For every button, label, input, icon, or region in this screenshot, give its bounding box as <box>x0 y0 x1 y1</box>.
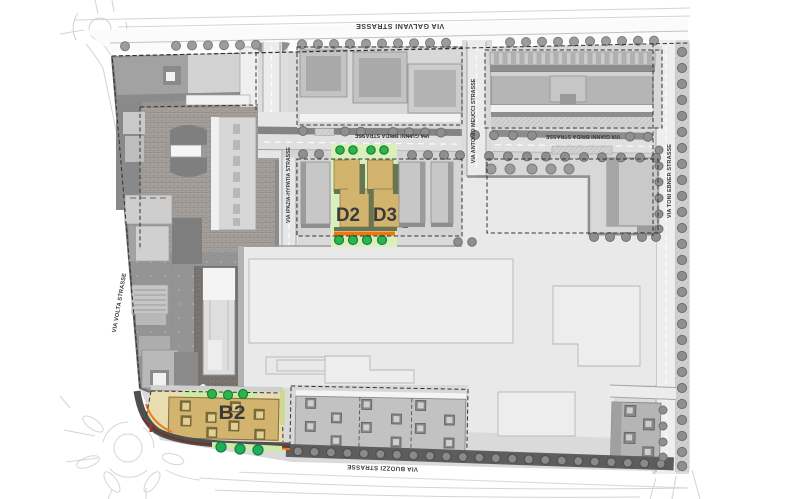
svg-text:VIA GIANNI BRIDA STRASSE: VIA GIANNI BRIDA STRASSE <box>354 132 429 138</box>
svg-text:D2: D2 <box>336 205 360 226</box>
svg-text:VIA GALVANI STRASSE: VIA GALVANI STRASSE <box>356 22 445 31</box>
svg-text:VIA TONI EBNER STRASSE: VIA TONI EBNER STRASSE <box>667 144 673 218</box>
svg-text:D3: D3 <box>373 205 397 226</box>
svg-text:B2: B2 <box>219 403 246 424</box>
svg-text:VIA ANTONIO MEUCCI STRASSE: VIA ANTONIO MEUCCI STRASSE <box>471 78 477 163</box>
svg-text:VIA IPAZIA-HYPATIA STRASSE: VIA IPAZIA-HYPATIA STRASSE <box>286 146 292 223</box>
svg-text:VIA GIANNI BRIDA STRASSE: VIA GIANNI BRIDA STRASSE <box>545 133 620 139</box>
